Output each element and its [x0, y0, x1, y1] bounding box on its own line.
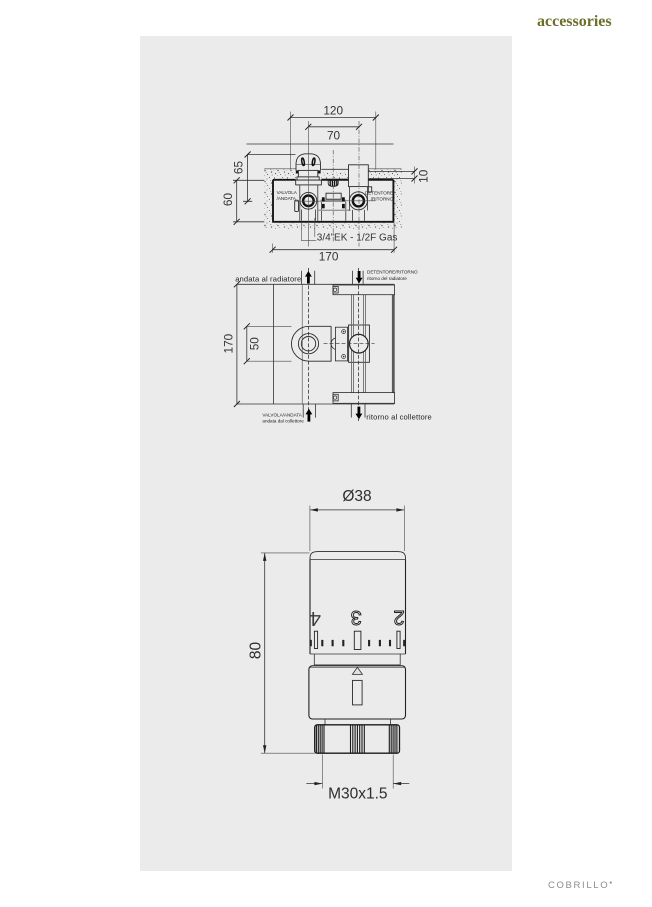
svg-text:ritorno al collettore: ritorno al collettore [366, 413, 432, 422]
svg-text:andata al radiatore: andata al radiatore [235, 275, 301, 284]
svg-text:Ø38: Ø38 [342, 488, 371, 505]
svg-text:DETENTORE/RITORNO: DETENTORE/RITORNO [367, 269, 418, 274]
svg-text:170: 170 [319, 249, 339, 263]
svg-text:3/4”EK - 1/2F Gas: 3/4”EK - 1/2F Gas [317, 232, 398, 243]
svg-text:4: 4 [310, 607, 321, 629]
svg-text:120: 120 [323, 104, 343, 118]
svg-text:VALVOLA/ANDATA: VALVOLA/ANDATA [262, 412, 302, 417]
svg-text:80: 80 [248, 642, 265, 660]
svg-text:50: 50 [247, 337, 261, 351]
svg-text:60: 60 [221, 193, 235, 207]
svg-text:M30x1.5: M30x1.5 [328, 785, 387, 802]
svg-text:VALVOLA: VALVOLA [277, 190, 298, 195]
svg-text:/ANDATA: /ANDATA [277, 196, 297, 201]
svg-text:DETENTORE: DETENTORE [365, 190, 393, 195]
svg-text:3: 3 [351, 606, 362, 628]
svg-text:2: 2 [393, 606, 404, 628]
svg-text:65: 65 [231, 161, 245, 175]
svg-text:ritorno del radiatore: ritorno del radiatore [367, 276, 407, 281]
svg-text:/RITORNO: /RITORNO [371, 196, 394, 201]
svg-text:170: 170 [221, 333, 235, 353]
svg-text:70: 70 [327, 129, 341, 143]
svg-text:andata dal collettore: andata dal collettore [262, 419, 304, 424]
svg-text:10: 10 [416, 169, 430, 183]
